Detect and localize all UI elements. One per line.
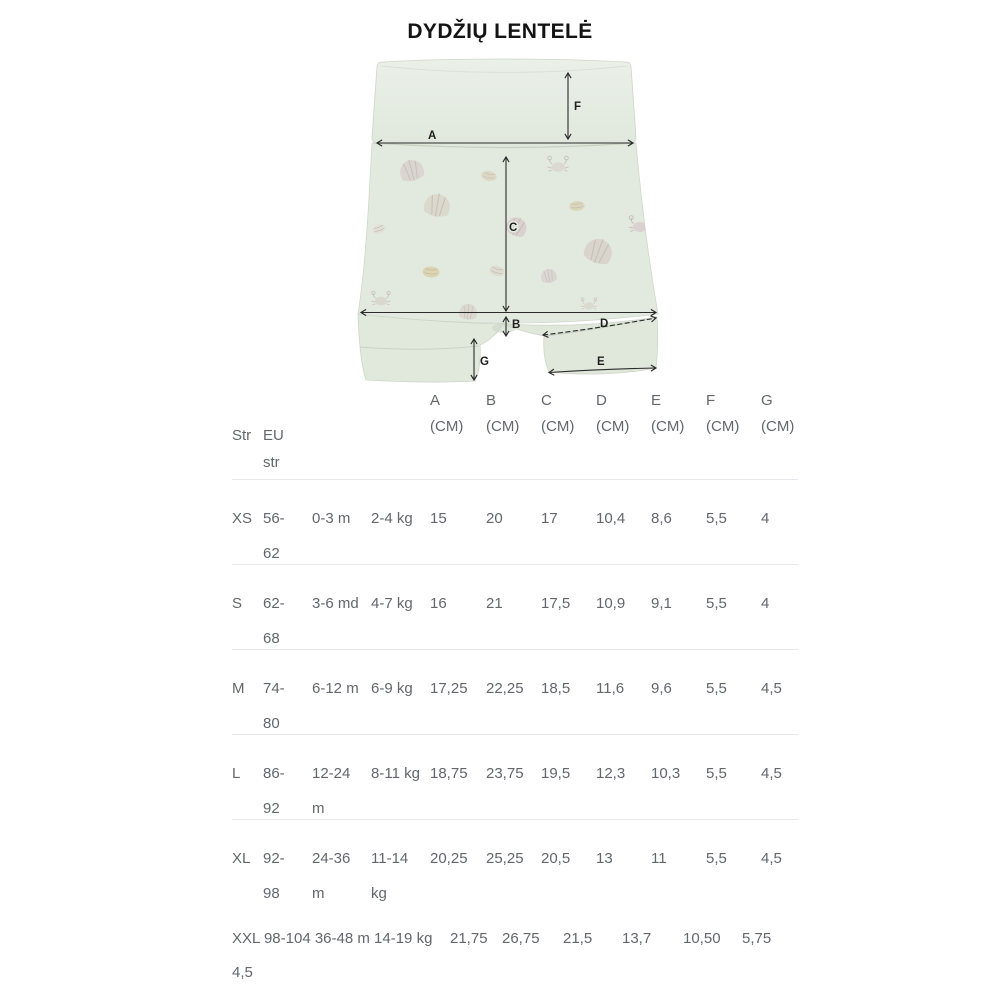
- cell-f: 5,5: [706, 841, 761, 911]
- cell-eu: 74- 80: [263, 671, 312, 741]
- xxl-row: XXL 98-104 36-48 m 14-19 kg 21,75 26,75 …: [232, 922, 852, 992]
- cell-c: 19,5: [541, 756, 596, 826]
- cell-age: 6-12 m: [312, 671, 371, 741]
- cell-g: 4,5: [761, 671, 798, 741]
- cell-c: 17,5: [541, 586, 596, 656]
- cell-size: XL: [232, 841, 263, 911]
- cell-c: 17: [541, 501, 596, 571]
- cell-b: 23,75: [486, 756, 541, 826]
- cell-f: 5,5: [706, 671, 761, 741]
- cell-b: 21: [486, 586, 541, 656]
- cell-weight: 2-4 kg: [371, 501, 430, 571]
- cell-c: 18,5: [541, 671, 596, 741]
- cell-g: 4,5: [761, 841, 798, 911]
- cell-weight: 4-7 kg: [371, 586, 430, 656]
- table-row: L 86- 92 12-24 m 8-11 kg 18,75 23,75 19,…: [232, 734, 798, 819]
- cell-a: 15: [430, 501, 486, 571]
- header-col-g: G (CM): [761, 388, 798, 476]
- xxl-value-a: 21,75: [450, 922, 488, 956]
- measure-label-b: B: [512, 319, 520, 331]
- cell-age: 24-36 m: [312, 841, 371, 911]
- header-size: Str: [232, 388, 263, 476]
- xxl-value-b: 26,75: [502, 922, 540, 956]
- header-eu: EU str: [263, 388, 312, 476]
- cell-age: 3-6 md: [312, 586, 371, 656]
- cell-a: 20,25: [430, 841, 486, 911]
- cell-a: 18,75: [430, 756, 486, 826]
- header-col-c: C (CM): [541, 388, 596, 476]
- measure-label-g: G: [480, 356, 489, 368]
- xxl-label: XXL 98-104 36-48 m 14-19 kg: [232, 922, 432, 956]
- table-row: S 62- 68 3-6 md 4-7 kg 16 21 17,5 10,9 9…: [232, 564, 798, 649]
- cell-e: 10,3: [651, 756, 706, 826]
- cell-weight: 8-11 kg: [371, 756, 430, 826]
- cell-size: XS: [232, 501, 263, 571]
- cell-g: 4: [761, 586, 798, 656]
- table-row: XL 92- 98 24-36 m 11-14 kg 20,25 25,25 2…: [232, 819, 798, 904]
- cell-b: 20: [486, 501, 541, 571]
- cell-d: 10,9: [596, 586, 651, 656]
- table-row: M 74- 80 6-12 m 6-9 kg 17,25 22,25 18,5 …: [232, 649, 798, 734]
- cell-b: 25,25: [486, 841, 541, 911]
- cell-weight: 11-14 kg: [371, 841, 430, 911]
- cell-c: 20,5: [541, 841, 596, 911]
- cell-size: S: [232, 586, 263, 656]
- cell-age: 12-24 m: [312, 756, 371, 826]
- cell-f: 5,5: [706, 586, 761, 656]
- cell-e: 11: [651, 841, 706, 911]
- header-weight: [371, 388, 430, 476]
- cell-f: 5,5: [706, 501, 761, 571]
- cell-d: 11,6: [596, 671, 651, 741]
- size-table-header: Str EU str A (CM) B (CM) C (CM) D (CM) E…: [232, 388, 798, 476]
- header-col-d: D (CM): [596, 388, 651, 476]
- size-chart-page: DYDŽIŲ LENTELĖ: [0, 0, 1000, 1000]
- cell-e: 9,1: [651, 586, 706, 656]
- cell-a: 16: [430, 586, 486, 656]
- product-diagram: A B C D E F G: [338, 50, 684, 396]
- cell-eu: 86- 92: [263, 756, 312, 826]
- measure-label-e: E: [597, 356, 605, 368]
- cell-a: 17,25: [430, 671, 486, 741]
- cell-f: 5,5: [706, 756, 761, 826]
- cell-eu: 62- 68: [263, 586, 312, 656]
- cell-d: 12,3: [596, 756, 651, 826]
- header-col-e: E (CM): [651, 388, 706, 476]
- measure-label-c: C: [509, 222, 517, 234]
- cell-e: 8,6: [651, 501, 706, 571]
- page-title: DYDŽIŲ LENTELĖ: [0, 20, 1000, 44]
- size-table-body: XS 56- 62 0-3 m 2-4 kg 15 20 17 10,4 8,6…: [232, 479, 798, 904]
- cell-e: 9,6: [651, 671, 706, 741]
- xxl-value-f: 5,75: [742, 922, 771, 956]
- cell-weight: 6-9 kg: [371, 671, 430, 741]
- cell-g: 4,5: [761, 756, 798, 826]
- cell-d: 13: [596, 841, 651, 911]
- measure-label-f: F: [574, 101, 581, 113]
- header-col-f: F (CM): [706, 388, 761, 476]
- cell-eu: 56- 62: [263, 501, 312, 571]
- measure-label-a: A: [428, 130, 436, 142]
- xxl-value-g: 4,5: [232, 956, 253, 990]
- table-row: XS 56- 62 0-3 m 2-4 kg 15 20 17 10,4 8,6…: [232, 479, 798, 564]
- cell-d: 10,4: [596, 501, 651, 571]
- header-col-b: B (CM): [486, 388, 541, 476]
- cell-b: 22,25: [486, 671, 541, 741]
- cell-size: M: [232, 671, 263, 741]
- xxl-value-e: 10,50: [683, 922, 721, 956]
- header-age: [312, 388, 371, 476]
- xxl-value-d: 13,7: [622, 922, 651, 956]
- header-col-a: A (CM): [430, 388, 486, 476]
- xxl-value-c: 21,5: [563, 922, 592, 956]
- measure-label-d: D: [600, 318, 608, 330]
- cell-age: 0-3 m: [312, 501, 371, 571]
- cell-eu: 92- 98: [263, 841, 312, 911]
- cell-g: 4: [761, 501, 798, 571]
- cell-size: L: [232, 756, 263, 826]
